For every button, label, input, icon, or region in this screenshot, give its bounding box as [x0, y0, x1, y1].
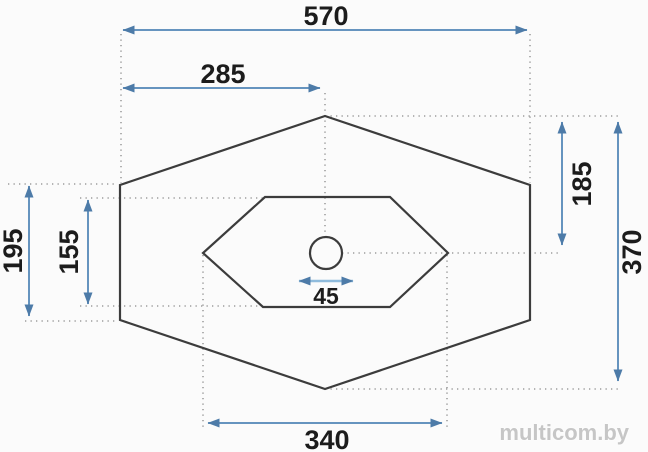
- dimension-drawing: 570 285 195 155 185 370 45 340 multicom.…: [0, 0, 648, 452]
- dimension-labels: 570 285 195 155 185 370 45 340: [0, 1, 647, 452]
- dim-label-basin-width: 340: [304, 425, 349, 452]
- dim-label-side-edge-height: 195: [0, 228, 28, 273]
- dim-label-top-to-center: 185: [567, 161, 597, 206]
- drain-hole: [310, 237, 342, 269]
- watermark: multicom.by: [499, 420, 629, 446]
- dim-label-overall-height: 370: [617, 229, 647, 274]
- dim-label-drain-width: 45: [313, 283, 339, 309]
- dim-label-overall-width: 570: [303, 1, 348, 31]
- dim-label-half-width: 285: [200, 59, 245, 89]
- drawing-canvas: 570 285 195 155 185 370 45 340: [0, 0, 648, 452]
- dim-label-basin-height: 155: [54, 229, 84, 274]
